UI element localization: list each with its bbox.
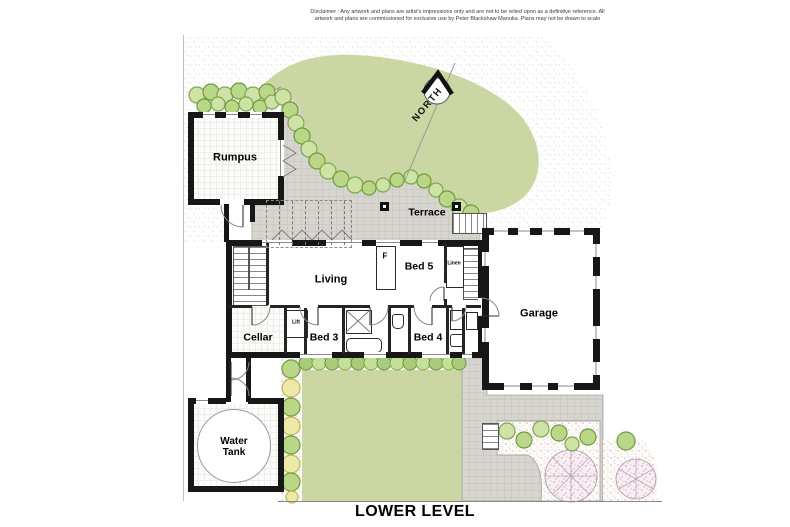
- room-label-cellar: Cellar: [243, 333, 272, 344]
- flowering-tree-small: [616, 459, 656, 499]
- linen-closet: [446, 246, 464, 288]
- stair-rail: [248, 246, 250, 290]
- room-label-bed5: Bed 5: [405, 262, 434, 273]
- shower: [346, 310, 372, 334]
- pergola-beam: [318, 201, 319, 245]
- bathtub: [346, 338, 382, 353]
- basin-ensuite: [466, 312, 478, 330]
- room-label-lift: Lift: [292, 321, 300, 326]
- room-label-bed3: Bed 3: [310, 333, 339, 344]
- pergola-beam: [331, 201, 332, 245]
- room-label-living: Living: [315, 275, 347, 286]
- floor-plan: Rumpus Terrace Living Bed 5 F Linen Cell…: [0, 0, 790, 527]
- rear-hedge-row: [299, 356, 466, 370]
- side-strip-shrubs: [282, 360, 300, 503]
- pergola-beam: [279, 201, 280, 245]
- pergola-beam: [305, 201, 306, 245]
- disclaimer-line1: Disclaimer : Any artwork and plans are a…: [300, 9, 615, 16]
- room-label-linen: Linen: [447, 262, 460, 267]
- room-label-terrace: Terrace: [408, 208, 445, 219]
- page-title: LOWER LEVEL: [40, 503, 790, 521]
- main-staircase: [233, 246, 268, 306]
- toilet-bath: [392, 314, 404, 329]
- room-label-rumpus: Rumpus: [213, 153, 257, 164]
- room-label-bed4: Bed 4: [414, 333, 443, 344]
- pergola-beam: [344, 201, 345, 245]
- garden-step-flight: [482, 423, 499, 450]
- room-label-water-tank: Water Tank: [211, 436, 257, 458]
- flowering-tree-large: [545, 450, 597, 502]
- room-label-fireplace: F: [383, 251, 388, 262]
- pergola-beam: [292, 201, 293, 245]
- terrace-post: [452, 202, 461, 211]
- terrace-post: [380, 202, 389, 211]
- disclaimer-line2: artwork and plans are commissioned for e…: [300, 16, 615, 23]
- room-label-garage: Garage: [520, 309, 558, 320]
- disclaimer: Disclaimer : Any artwork and plans are a…: [300, 9, 615, 22]
- cellar-floor: [231, 307, 286, 353]
- hall-floor: [229, 204, 251, 242]
- rear-lawn: [302, 369, 462, 502]
